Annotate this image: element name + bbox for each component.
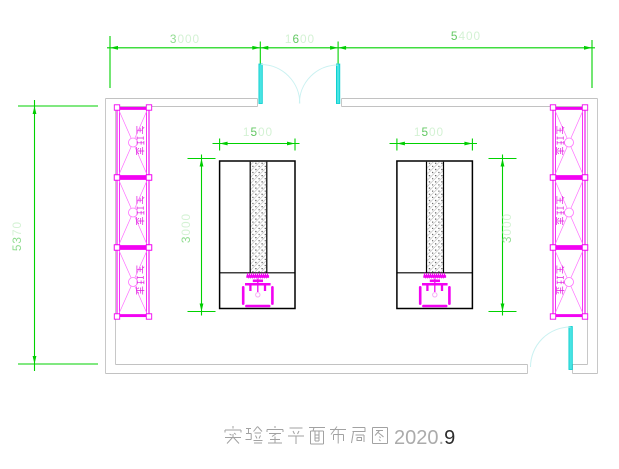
svg-text:1500: 1500 xyxy=(243,125,273,139)
svg-text:3000: 3000 xyxy=(500,213,514,243)
svg-text:5370: 5370 xyxy=(10,221,24,251)
svg-text:5400: 5400 xyxy=(451,29,481,43)
svg-text:1500: 1500 xyxy=(414,125,444,139)
svg-text:3000: 3000 xyxy=(179,213,193,243)
svg-text:3000: 3000 xyxy=(170,32,200,46)
svg-text:1600: 1600 xyxy=(285,32,315,46)
svg-text:2020.9: 2020.9 xyxy=(394,427,455,449)
